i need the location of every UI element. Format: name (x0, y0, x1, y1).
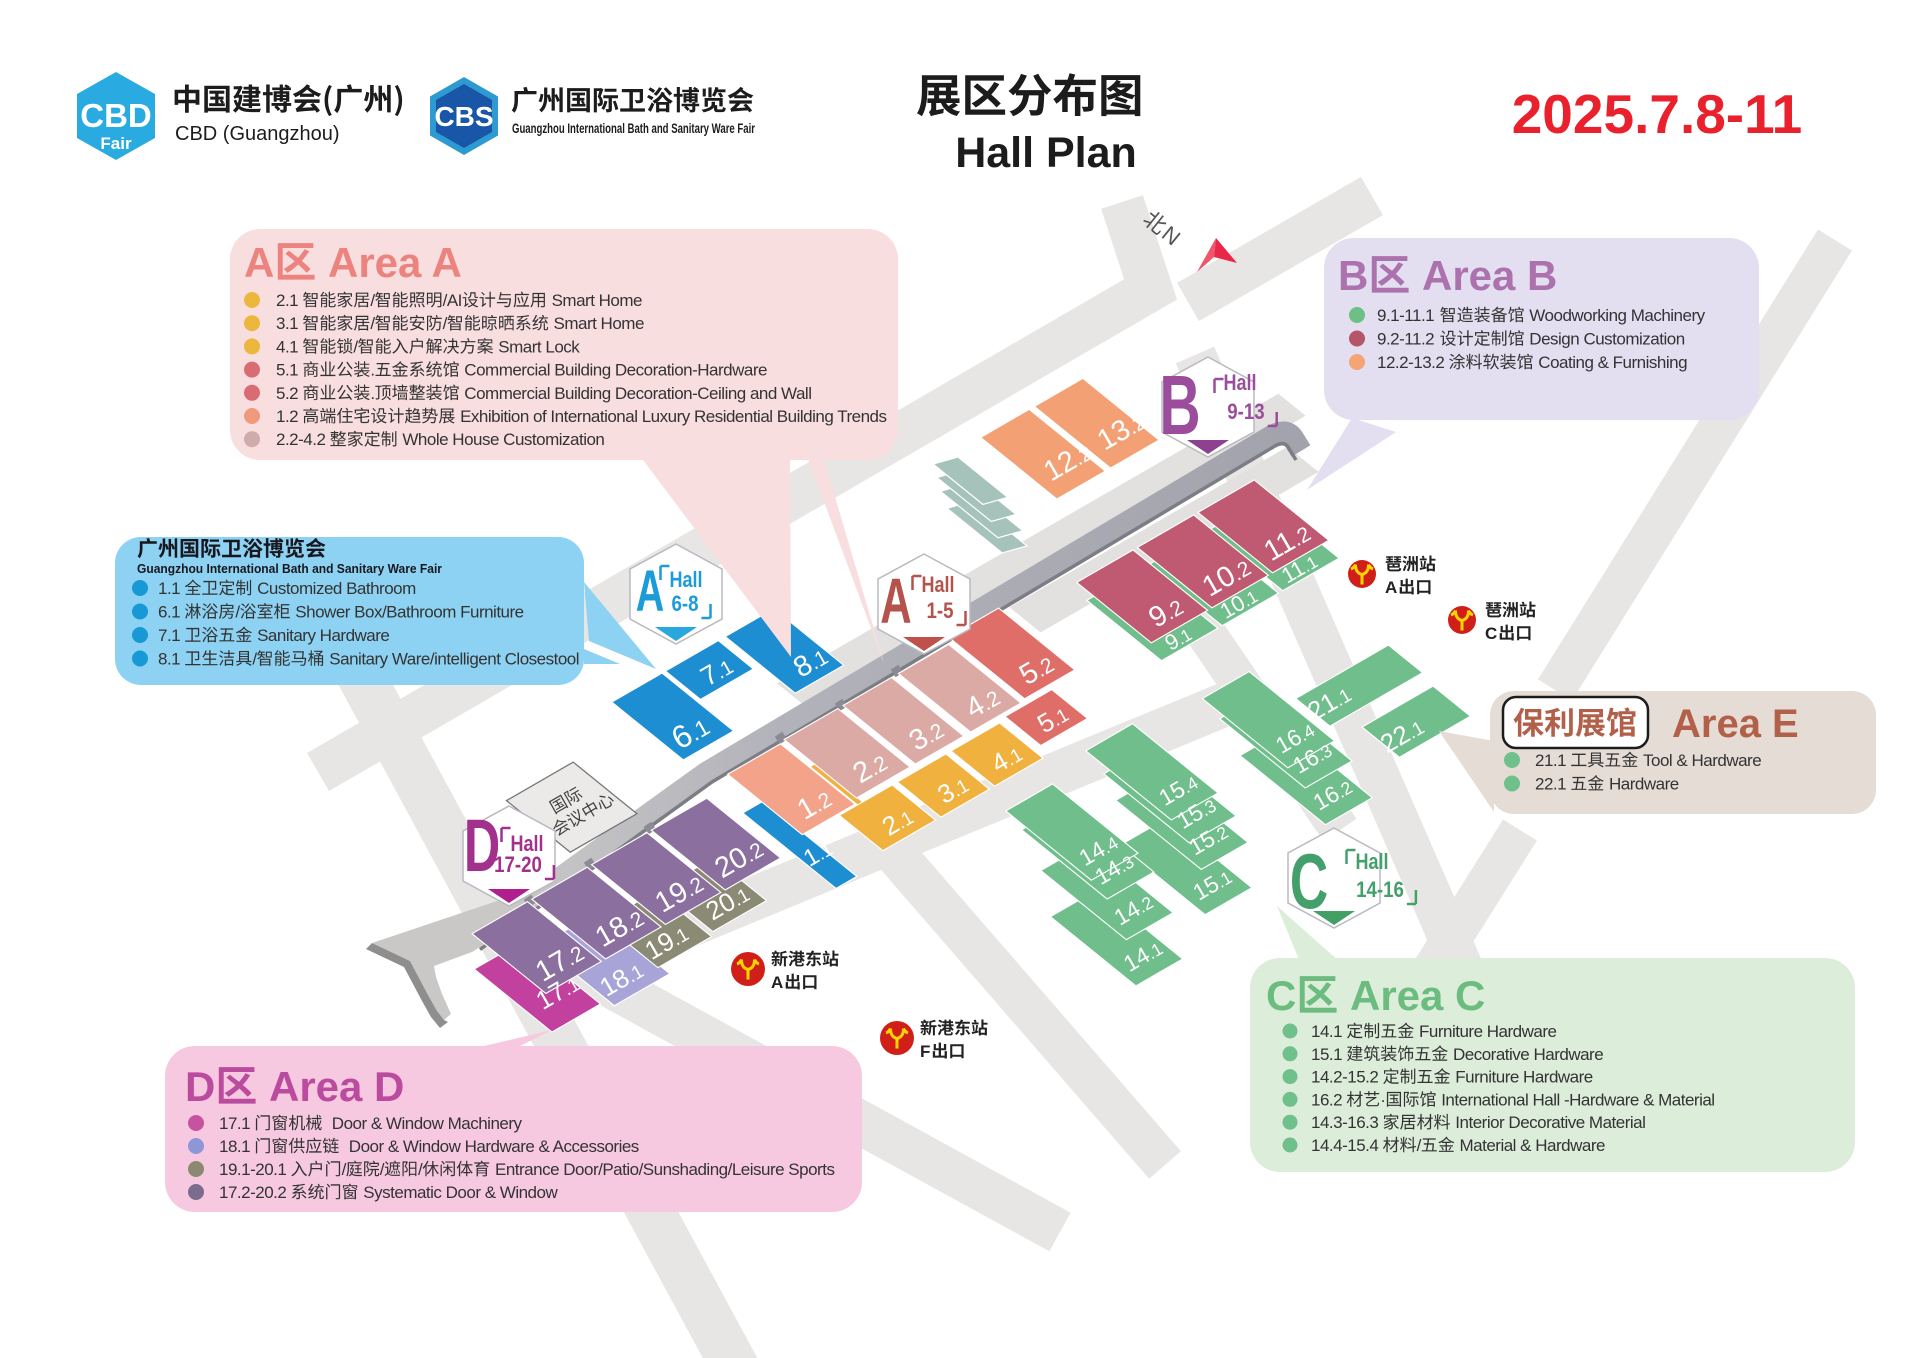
svg-text:A: A (880, 565, 911, 638)
svg-text:9.1-11.1: 9.1-11.1 (1377, 306, 1434, 325)
svg-text:Smart Home: Smart Home (552, 291, 642, 310)
svg-text:Commercial Building Decoration: Commercial Building Decoration-Ceiling a… (464, 384, 811, 403)
svg-text:.: . (370, 384, 374, 403)
svg-text:Hall: Hall (1224, 370, 1257, 395)
svg-text:3.1: 3.1 (276, 314, 298, 333)
svg-text:1-5: 1-5 (927, 598, 954, 623)
svg-text:Hall: Hall (922, 572, 955, 597)
svg-text:Hall: Hall (1356, 849, 1389, 874)
svg-text:Interior Decorative Material: Interior Decorative Material (1455, 1113, 1645, 1132)
svg-text:C: C (1485, 624, 1497, 643)
svg-text:C: C (1290, 839, 1328, 926)
svg-text:19.1-20.1: 19.1-20.1 (219, 1160, 286, 1179)
svg-text:14.1: 14.1 (1311, 1022, 1342, 1041)
svg-text:Whole House Customization: Whole House Customization (402, 430, 604, 449)
svg-text:2.1: 2.1 (276, 291, 298, 310)
svg-text:Furniture Hardware: Furniture Hardware (1419, 1022, 1556, 1041)
svg-text:Door & Window Machinery: Door & Window Machinery (332, 1114, 523, 1133)
svg-text:Exhibition of International Lu: Exhibition of International Luxury Resid… (460, 407, 886, 426)
svg-text:9.2-11.2: 9.2-11.2 (1377, 330, 1434, 349)
svg-text:Area E: Area E (1672, 702, 1799, 746)
svg-text:A: A (771, 973, 783, 992)
svg-text:15.1: 15.1 (1311, 1045, 1342, 1064)
svg-text:Smart Lock: Smart Lock (498, 337, 580, 356)
svg-text:Area D: Area D (269, 1063, 404, 1110)
svg-text:Material & Hardware: Material & Hardware (1460, 1136, 1605, 1155)
svg-text:F: F (920, 1042, 930, 1061)
svg-text:Area C: Area C (1350, 972, 1485, 1019)
svg-text:Smart Home: Smart Home (554, 314, 644, 333)
svg-text:9-13: 9-13 (1227, 399, 1264, 424)
svg-text:2.2-4.2: 2.2-4.2 (276, 430, 325, 449)
svg-text:Area A: Area A (328, 239, 462, 286)
svg-text:18.1: 18.1 (219, 1137, 250, 1156)
svg-text:Systematic Door & Window: Systematic Door & Window (363, 1183, 558, 1202)
svg-text:17.1: 17.1 (219, 1114, 250, 1133)
svg-text:CBD (Guangzhou): CBD (Guangzhou) (175, 123, 340, 145)
svg-text:1.2: 1.2 (276, 407, 298, 426)
svg-text:.: . (370, 361, 374, 380)
svg-text:B: B (1338, 252, 1368, 299)
svg-text:·: · (1380, 1090, 1385, 1109)
svg-text:CBS: CBS (434, 101, 493, 132)
svg-text:Decorative Hardware: Decorative Hardware (1453, 1045, 1603, 1064)
svg-text:A: A (244, 239, 274, 286)
svg-text:Guangzhou International Bath a: Guangzhou International Bath and Sanitar… (512, 121, 756, 136)
svg-text:Entrance Door/Patio/Sunshading: Entrance Door/Patio/Sunshading/Leisure S… (495, 1160, 834, 1179)
svg-text:14.2-15.2: 14.2-15.2 (1311, 1068, 1378, 1087)
svg-text:Tool & Hardware: Tool & Hardware (1643, 751, 1761, 770)
svg-text:Commercial Building Decoration: Commercial Building Decoration-Hardware (464, 361, 767, 380)
svg-text:B: B (1159, 359, 1200, 453)
svg-text:5.1: 5.1 (276, 361, 298, 380)
svg-text:CBD: CBD (80, 97, 152, 134)
svg-text:Hall: Hall (670, 567, 703, 592)
svg-text:International Hall -Hardware &: International Hall -Hardware & Material (1441, 1090, 1714, 1109)
svg-text:Coating & Furnishing: Coating & Furnishing (1538, 353, 1687, 372)
svg-text:/AI: /AI (443, 291, 462, 310)
svg-text:Design Customization: Design Customization (1529, 330, 1684, 349)
svg-text:N: N (1157, 221, 1185, 250)
svg-text:14.3-16.3: 14.3-16.3 (1311, 1113, 1378, 1132)
svg-text:1.1: 1.1 (158, 579, 180, 598)
svg-text:14.4-15.4: 14.4-15.4 (1311, 1136, 1378, 1155)
svg-text:7.1: 7.1 (158, 626, 180, 645)
svg-text:6.1: 6.1 (158, 603, 180, 622)
svg-text:Door & Window Hardware & Acces: Door & Window Hardware & Accessories (349, 1137, 639, 1156)
svg-text:Sanitary Hardware: Sanitary Hardware (257, 626, 389, 645)
svg-text:4.1: 4.1 (276, 337, 298, 356)
svg-text:2025.7.8-11: 2025.7.8-11 (1512, 83, 1803, 145)
svg-text:Customized Bathroom: Customized Bathroom (257, 579, 416, 598)
svg-text:A: A (1385, 578, 1397, 597)
svg-text:Hall Plan: Hall Plan (955, 129, 1137, 177)
svg-text:22.1: 22.1 (1535, 775, 1566, 794)
svg-text:Sanitary Ware/intelligent Clos: Sanitary Ware/intelligent Closestool (329, 650, 579, 669)
svg-text:21.1: 21.1 (1535, 751, 1566, 770)
svg-text:Fair: Fair (100, 134, 132, 153)
svg-text:17.2-20.2: 17.2-20.2 (219, 1183, 286, 1202)
svg-text:12.2-13.2: 12.2-13.2 (1377, 353, 1444, 372)
svg-text:5.2: 5.2 (276, 384, 298, 403)
svg-text:8.1: 8.1 (158, 650, 180, 669)
svg-text:17-20: 17-20 (494, 852, 542, 877)
svg-text:Woodworking Machinery: Woodworking Machinery (1529, 306, 1705, 325)
svg-text:C: C (1266, 972, 1296, 1019)
svg-text:16.2: 16.2 (1311, 1090, 1342, 1109)
svg-text:Furniture Hardware: Furniture Hardware (1455, 1068, 1592, 1087)
svg-text:14-16: 14-16 (1356, 877, 1404, 902)
svg-text:Shower Box/Bathroom Furniture: Shower Box/Bathroom Furniture (295, 603, 523, 622)
svg-text:Area B: Area B (1422, 252, 1557, 299)
svg-text:Hardware: Hardware (1609, 775, 1679, 794)
svg-text:6-8: 6-8 (672, 591, 699, 616)
svg-text:Guangzhou International Bath a: Guangzhou International Bath and Sanitar… (137, 562, 442, 576)
svg-text:D: D (185, 1063, 215, 1110)
